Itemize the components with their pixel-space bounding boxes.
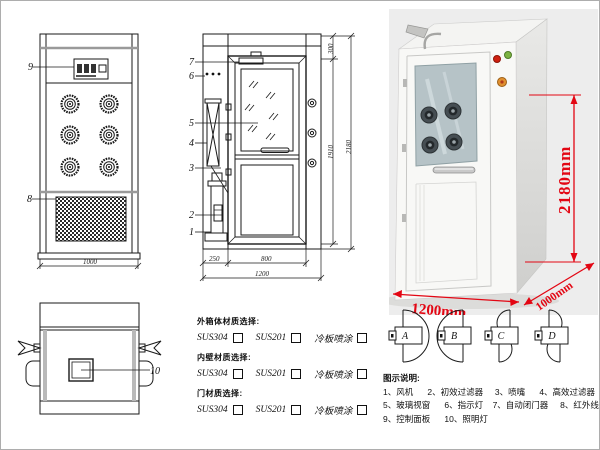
glass-window bbox=[241, 69, 293, 151]
callout-1: 1 bbox=[189, 227, 194, 238]
door-swing-left bbox=[18, 341, 40, 355]
nozzles-front bbox=[62, 96, 118, 176]
material-group-outer-box: 外箱体材质选择: SUS304 SUS201 冷板喷涂 bbox=[197, 316, 367, 345]
option-label: SUS304 bbox=[197, 369, 228, 379]
door-swing-option-a[interactable]: A bbox=[389, 310, 429, 362]
photo-dim-height: 2180mm bbox=[555, 146, 574, 214]
filter-column bbox=[211, 186, 223, 233]
legend-line: 1、风机 2、初效过滤器 3、喷嘴 4、高效过滤器 bbox=[383, 386, 593, 400]
option-label: 冷板喷涂 bbox=[314, 367, 352, 381]
side-dim-1910: 1910 bbox=[327, 145, 335, 160]
option-letter: B bbox=[451, 331, 457, 342]
checkbox[interactable] bbox=[357, 333, 367, 343]
callout-2: 2 bbox=[189, 210, 194, 221]
legend-title: 图示说明: bbox=[383, 372, 593, 386]
material-group-inner-wall: 内壁材质选择: SUS304 SUS201 冷板喷涂 bbox=[197, 352, 367, 381]
option-letter: C bbox=[498, 331, 505, 342]
checkbox[interactable] bbox=[357, 369, 367, 379]
checkbox[interactable] bbox=[233, 333, 243, 343]
legend-line: 5、玻璃视窗 6、指示灯 7、自动闭门器 8、红外线感应器 bbox=[383, 399, 593, 413]
option-label: SUS201 bbox=[256, 333, 287, 343]
handle-left bbox=[26, 361, 40, 386]
top-view-drawing: 10 bbox=[16, 297, 191, 425]
material-heading: 外箱体材质选择: bbox=[197, 316, 367, 327]
callout-6: 6 bbox=[189, 71, 194, 82]
nozzles-side bbox=[308, 99, 316, 167]
side-dim-250: 250 bbox=[209, 255, 220, 263]
callout-10: 10 bbox=[150, 366, 160, 377]
checkbox[interactable] bbox=[233, 405, 243, 415]
option-label: SUS304 bbox=[197, 333, 228, 343]
door-swing-option-d[interactable]: D bbox=[535, 310, 568, 362]
parts-legend: 图示说明: 1、风机 2、初效过滤器 3、喷嘴 4、高效过滤器 5、玻璃视窗 6… bbox=[383, 372, 593, 426]
red-indicator-light bbox=[494, 56, 501, 63]
side-dim-2180: 2180 bbox=[345, 140, 353, 155]
door-swing-options: A B C bbox=[386, 301, 581, 371]
side-dim-1200: 1200 bbox=[255, 270, 270, 278]
checkbox[interactable] bbox=[233, 369, 243, 379]
checkbox[interactable] bbox=[291, 405, 301, 415]
front-dim-width: 1000 bbox=[83, 258, 98, 266]
callout-5: 5 bbox=[189, 118, 194, 129]
door-swing-option-c[interactable]: C bbox=[485, 310, 518, 362]
spec-sheet: 9 8 1000 bbox=[0, 0, 600, 450]
cabinet-side bbox=[516, 19, 547, 293]
air-return-grille bbox=[56, 197, 126, 241]
callout-4: 4 bbox=[189, 138, 194, 149]
checkbox[interactable] bbox=[357, 405, 367, 415]
material-heading: 内壁材质选择: bbox=[197, 352, 367, 363]
option-label: 冷板喷涂 bbox=[314, 403, 352, 417]
front-view-drawing: 9 8 1000 bbox=[26, 26, 176, 271]
side-dim-300: 300 bbox=[327, 43, 335, 55]
checkbox[interactable] bbox=[291, 333, 301, 343]
door-swing-right bbox=[139, 341, 161, 355]
door-handle bbox=[261, 148, 289, 153]
material-group-door: 门材质选择: SUS304 SUS201 冷板喷涂 bbox=[197, 388, 367, 417]
callout-9: 9 bbox=[28, 62, 33, 73]
material-selection: 外箱体材质选择: SUS304 SUS201 冷板喷涂 内壁材质选择: SUS3… bbox=[197, 316, 367, 424]
option-letter: A bbox=[401, 331, 409, 342]
callout-7: 7 bbox=[189, 57, 195, 68]
callout-3: 3 bbox=[188, 163, 194, 174]
side-dim-800: 800 bbox=[261, 255, 272, 263]
checkbox[interactable] bbox=[291, 369, 301, 379]
option-label: SUS201 bbox=[256, 405, 287, 415]
product-photo: 2180mm 1200mm 1000mm bbox=[389, 9, 598, 315]
door-handle-photo bbox=[433, 167, 475, 173]
door-swing-option-b[interactable]: B bbox=[437, 310, 471, 362]
option-label: 冷板喷涂 bbox=[314, 331, 352, 345]
callout-8: 8 bbox=[27, 194, 32, 205]
material-heading: 门材质选择: bbox=[197, 388, 367, 399]
green-indicator-light bbox=[505, 52, 512, 59]
option-label: SUS304 bbox=[197, 405, 228, 415]
option-letter: D bbox=[547, 331, 556, 342]
option-label: SUS201 bbox=[256, 369, 287, 379]
side-view-drawing: 7 6 5 4 3 2 1 250 800 1200 300 1910 2180 bbox=[181, 21, 361, 296]
legend-line: 9、控制面板 10、照明灯 bbox=[383, 413, 593, 427]
